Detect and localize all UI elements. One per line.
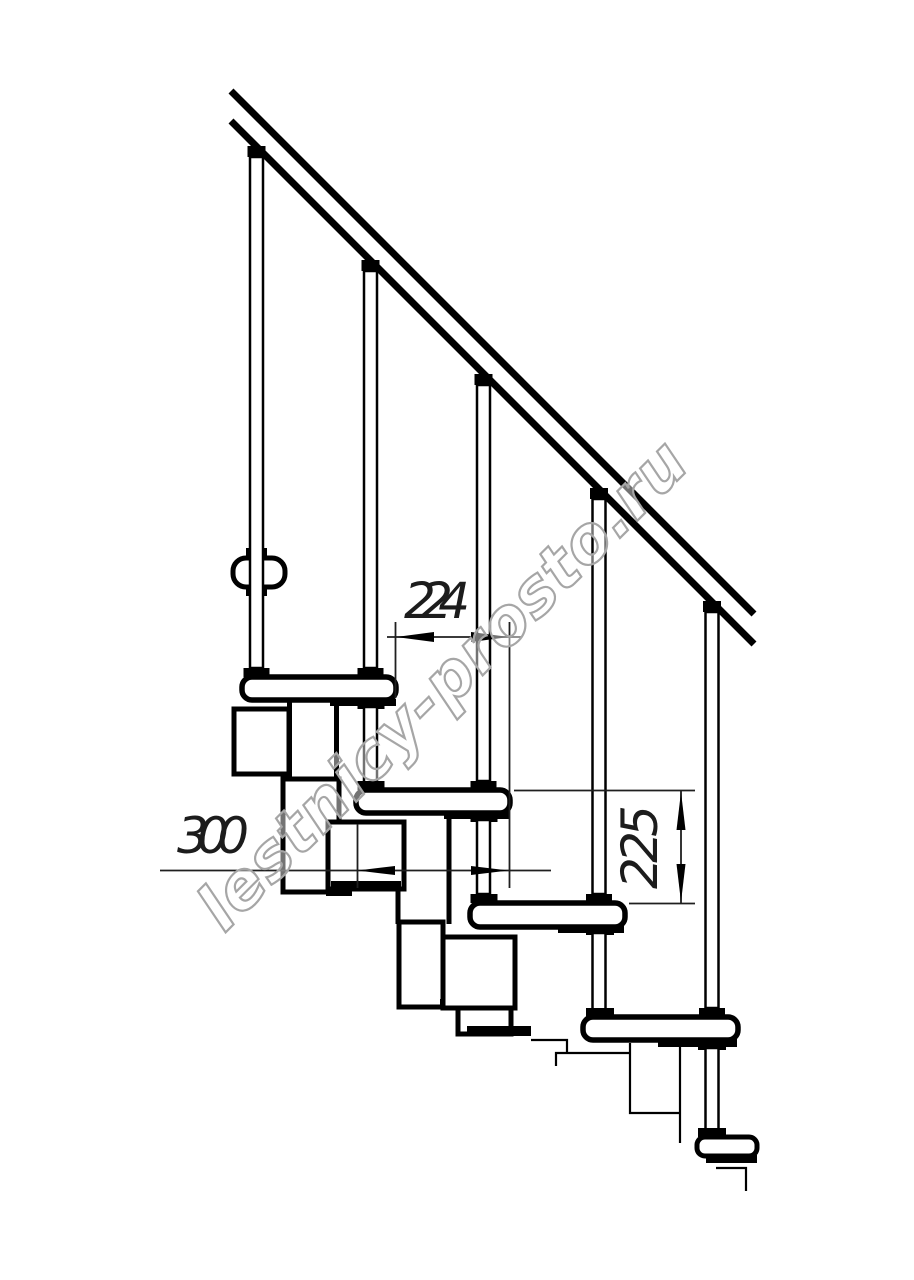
baluster-5-shaft [706, 612, 719, 1008]
handrail [231, 91, 754, 644]
cutoff-outline-e [716, 1168, 746, 1191]
baluster-2-shaft [364, 271, 377, 668]
bottom-step [697, 1137, 757, 1156]
module-box-3 [443, 937, 515, 1008]
module-box-1 [234, 709, 289, 774]
column-under-tread-3 [586, 926, 614, 1017]
baluster-1-shaft [250, 157, 263, 668]
column-3-shaft [593, 933, 606, 1010]
column-2-shaft [477, 820, 490, 894]
tread-4 [583, 1017, 738, 1040]
cutoff-outline-a [531, 1040, 567, 1052]
module-column-2 [399, 922, 443, 1007]
drawing-svg: 224 300 225 lestnicy-prosto.ru [0, 0, 914, 1280]
column-under-tread-4 [698, 1041, 726, 1137]
module-box-2-foot [331, 881, 401, 890]
staircase-technical-drawing: 224 300 225 lestnicy-prosto.ru [0, 0, 914, 1280]
handrail-top-line [231, 91, 754, 614]
cutoff-outline-b [556, 1053, 630, 1066]
tread-3 [470, 903, 625, 927]
tread-1 [242, 677, 396, 700]
column-2-foot [471, 894, 498, 903]
baluster-5-foot [699, 1008, 725, 1017]
column-under-tread-2 [471, 813, 498, 903]
baluster-3-foot [471, 781, 497, 790]
baluster-3-cap [475, 374, 493, 385]
baluster-2-cap [362, 260, 380, 271]
cutoff-outline-c [630, 1043, 680, 1113]
bottom-fragment [531, 1040, 757, 1191]
baluster-4-foot [586, 894, 612, 903]
baluster-5 [699, 601, 725, 1017]
baluster-1 [244, 146, 270, 677]
baluster-1-cap [248, 146, 266, 157]
dimension-label-rise: 225 [611, 805, 669, 889]
arrow-224-left [396, 632, 434, 642]
baluster-2 [358, 260, 384, 677]
column-4-shaft [706, 1048, 719, 1130]
bottom-step-clamp [706, 1155, 757, 1163]
baluster-1-foot [244, 668, 270, 677]
baluster-5-cap [703, 601, 721, 612]
column-3-foot [586, 1008, 614, 1017]
baluster-3-shaft [477, 385, 490, 781]
dimension-225: 225 [611, 791, 686, 903]
arrow-225-up [677, 792, 686, 830]
arrow-225-down [677, 864, 686, 902]
baluster-2-foot [358, 668, 384, 677]
module-box-3-foot [467, 1026, 531, 1036]
